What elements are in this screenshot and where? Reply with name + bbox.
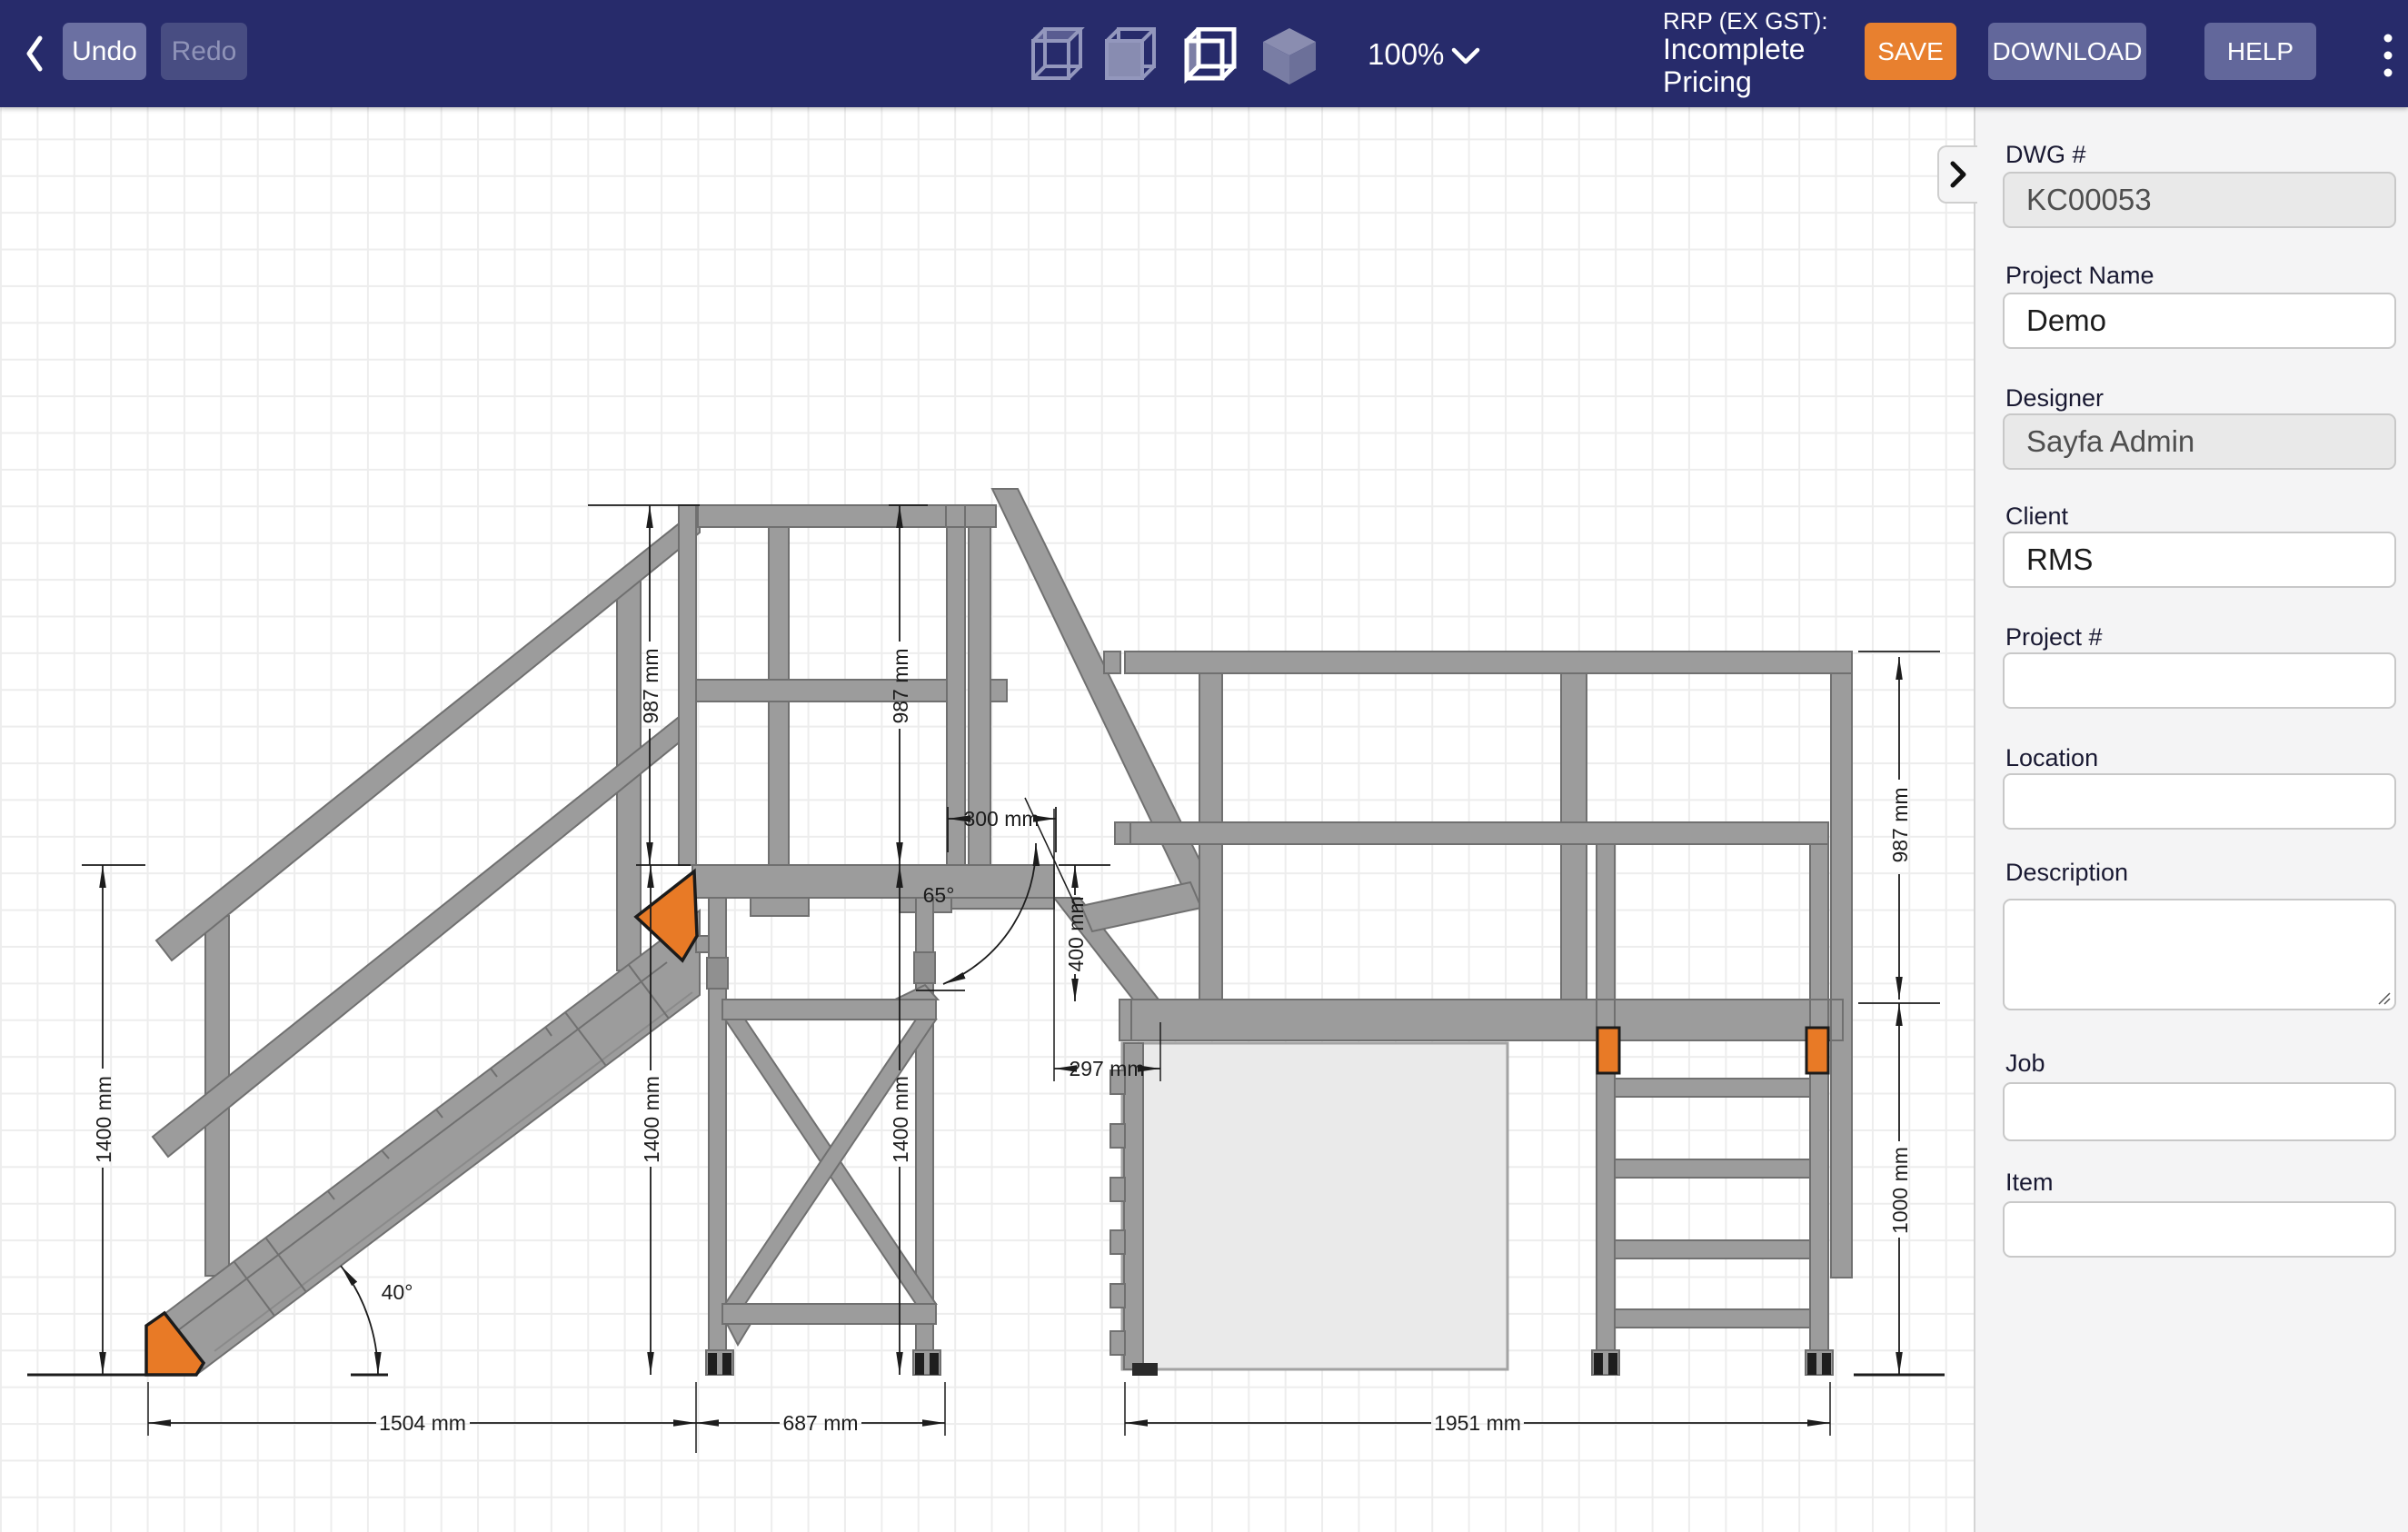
svg-text:987 mm: 987 mm — [1888, 787, 1912, 862]
svg-text:687 mm: 687 mm — [782, 1411, 858, 1435]
svg-text:400 mm: 400 mm — [1064, 896, 1088, 971]
svg-text:40°: 40° — [382, 1280, 413, 1304]
svg-text:65°: 65° — [923, 883, 955, 907]
svg-text:1504 mm: 1504 mm — [379, 1411, 466, 1435]
svg-text:1400 mm: 1400 mm — [92, 1076, 115, 1163]
svg-text:300 mm: 300 mm — [963, 807, 1039, 831]
svg-text:987 mm: 987 mm — [889, 648, 912, 723]
svg-text:1400 mm: 1400 mm — [889, 1076, 912, 1163]
svg-text:987 mm: 987 mm — [639, 648, 662, 723]
svg-text:1400 mm: 1400 mm — [640, 1076, 663, 1163]
svg-text:297 mm: 297 mm — [1069, 1057, 1144, 1080]
svg-text:1951 mm: 1951 mm — [1434, 1411, 1521, 1435]
svg-text:1000 mm: 1000 mm — [1888, 1147, 1912, 1234]
